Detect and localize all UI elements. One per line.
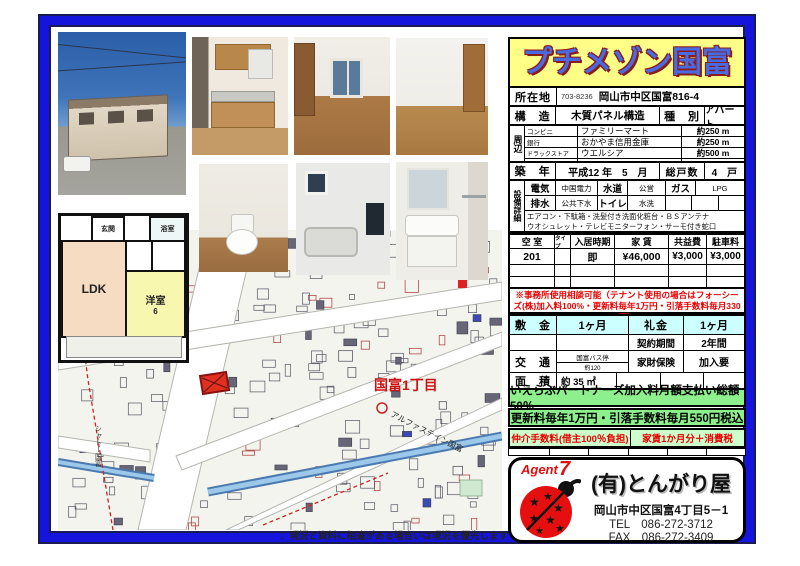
vacancy-header: 家 賃	[614, 235, 668, 248]
svg-text:★: ★	[555, 523, 565, 535]
vacancy-header: 空 室	[510, 235, 554, 248]
surrounding-row: ドラックストア ウエルシア 約500 m	[525, 148, 744, 159]
vacancy-table: 空 室 タイプ 入居時期 家 賃 共益費 駐車料 201 即 ¥46,000 ¥…	[508, 233, 746, 289]
deposit-label: 敷 金	[510, 316, 556, 334]
surroundings-block: 周辺 コンビニ ファミリーマート 約250 m 銀行 おかやま信用金庫 約250…	[508, 126, 746, 163]
built-year-row: 築 年 平成12 年 5 月 総戸数 4 戸	[508, 163, 746, 181]
vacancy-data-row: 201 即 ¥46,000 ¥3,000 ¥3,000	[510, 248, 744, 264]
ladybug-logo-icon: ★ ★ ★ ★ ★ ★ ★	[515, 474, 581, 542]
insurance-value: 加入要	[683, 351, 744, 372]
surrounding-category: ドラックストア	[525, 148, 577, 158]
rent-amount: ¥46,000	[614, 249, 668, 264]
built-value: 平成12 年 5 月	[555, 163, 659, 179]
surroundings-label: 周辺	[510, 126, 524, 161]
equipment-note-line2: ウオシュレット・テレビモニターフォン・サーモ付き蛇口	[527, 222, 742, 232]
built-label: 築 年	[510, 163, 555, 179]
key-money-value: 1ヶ月	[683, 316, 744, 334]
deposit-value: 1ヶ月	[556, 316, 628, 334]
surrounding-distance: 約250 m	[681, 137, 744, 147]
toilet-label: トイレ	[597, 196, 627, 210]
drain-label: 排水	[525, 196, 555, 210]
utilities-row-1: 電気 中国電力 水道 公営 ガス LPG	[525, 181, 744, 196]
map-building2-label: シャトー国富	[95, 425, 103, 468]
map-district-label: 国富1丁目	[374, 377, 438, 393]
partner-fee-note: いえらぶパートナーズ加入料月額支払い総額50％	[508, 388, 746, 407]
exterior-photo	[58, 32, 186, 195]
bus-stop-name: 国富バス停	[557, 352, 628, 363]
agency-box: Agent 7 ★ ★ ★ ★ ★ ★ ★ (有)とんがり屋 岡山市中区国富4丁…	[508, 457, 746, 543]
gas-label: ガス	[665, 181, 695, 195]
svg-text:★: ★	[543, 491, 553, 503]
vacancy-empty-row	[510, 276, 744, 287]
map-red-minor-marker	[458, 280, 467, 288]
vacancy-header: 駐車料	[706, 235, 744, 248]
type-label: 種 別	[659, 107, 703, 124]
drain-value: 公共下水	[555, 196, 597, 210]
floor-plan: 玄関 浴室 LDK 洋室6	[58, 213, 189, 363]
deposit-row: 敷 金 1ヶ月 礼金 1ヶ月	[510, 316, 744, 334]
transport-label: 交 通	[510, 351, 556, 372]
units-value: 4 戸	[704, 163, 744, 179]
surrounding-distance: 約500 m	[681, 148, 744, 158]
equipment-note-line1: エアコン・下駄箱・洗髪付き洗面化粧台・ＢＳアンテナ	[527, 212, 742, 222]
living-room-photo	[294, 37, 390, 155]
contract-label: 契約期間	[628, 335, 683, 350]
toilet-value: 水洗	[627, 196, 665, 210]
location-row: 所在地 703-8236 岡山市中区国富816-4	[508, 88, 746, 107]
movein-time: 即	[570, 249, 614, 264]
surrounding-distance: 約250 m	[681, 126, 744, 136]
transport-row: 交 通 国富バス停 約120 家財保険 加入要	[510, 350, 744, 372]
surrounding-row-empty	[525, 159, 744, 161]
toilet-photo	[199, 164, 288, 272]
location-value: 703-8236 岡山市中区国富816-4	[556, 88, 744, 105]
transport-value: 国富バス停 約120	[556, 351, 628, 372]
kitchen-photo	[192, 37, 288, 155]
structure-label: 構 造	[510, 107, 555, 124]
disclaimer-note: ：現況と資料に相違がある場合いは現況を優先します	[196, 528, 508, 542]
office-use-note: ※事務所使用相談可能（テナント使用の場合はフォーシーズ(株)加入料100%・更新…	[508, 287, 746, 314]
floorplan-balcony	[66, 336, 182, 358]
agency-name: (有)とんがり屋	[579, 468, 743, 498]
vacancy-header: タイプ	[554, 235, 570, 248]
surrounding-name: ファミリーマート	[577, 126, 681, 136]
terms-table: 敷 金 1ヶ月 礼金 1ヶ月 契約期間 2年間 交 通 国富バス停 約120 家…	[508, 314, 746, 391]
vacancy-header: 共益費	[668, 235, 706, 248]
electric-label: 電気	[525, 181, 555, 195]
surrounding-row: コンビニ ファミリーマート 約250 m	[525, 126, 744, 137]
floorplan-entrance: 玄関	[91, 216, 125, 242]
water-label: 水道	[597, 181, 627, 195]
contract-value: 2年間	[683, 335, 744, 350]
equipment-label: 設備詳細	[510, 181, 524, 231]
insurance-label: 家財保険	[628, 351, 683, 372]
contract-row: 契約期間 2年間	[510, 334, 744, 350]
svg-text:★: ★	[529, 495, 540, 509]
renewal-fee-note: 更新料毎年1万円・引落手数料毎月550円税込	[508, 408, 746, 427]
units-label: 総戸数	[659, 163, 703, 179]
location-label: 所在地	[510, 88, 556, 105]
structure-row: 構 造 木質パネル構造 種 別 アパート	[508, 107, 746, 126]
floorplan-ldk: LDK	[61, 240, 127, 338]
floorplan-toilet-box	[125, 240, 153, 272]
vacancy-header: 入居時期	[570, 235, 614, 248]
common-fee: ¥3,000	[668, 249, 706, 264]
map-property-marker	[200, 372, 229, 394]
bus-stop-distance: 約120	[557, 363, 628, 372]
surrounding-name: おかやま信用金庫	[577, 137, 681, 147]
key-money-label: 礼金	[628, 316, 683, 334]
agency-fax: FAX 086-272-3409	[579, 529, 743, 545]
surrounding-category: 銀行	[525, 137, 577, 147]
spacer-cells-row	[508, 448, 746, 456]
flyer-page: 国富1丁目 アルファステイン国富 シャトー国富 玄関 浴室 LDK 洋室6	[0, 0, 800, 566]
svg-text:★: ★	[529, 513, 539, 525]
broker-fee-value: 家賃1か月分＋消費税	[630, 430, 744, 446]
electric-value: 中国電力	[555, 181, 597, 195]
parking-fee: ¥3,000	[706, 249, 744, 264]
room-type	[554, 249, 570, 264]
type-value: アパート	[704, 107, 744, 124]
vacancy-empty-row	[510, 264, 744, 276]
bathroom-photo	[296, 163, 390, 275]
water-value: 公営	[627, 181, 665, 195]
surrounding-name: ウエルシア	[577, 148, 681, 158]
property-title: プチメゾン国富	[508, 37, 746, 88]
washstand-photo	[396, 162, 488, 280]
broker-fee-row: 仲介手数料(借主100％負担) 家賃1か月分＋消費税	[508, 428, 746, 448]
room-number: 201	[510, 249, 554, 264]
structure-value: 木質パネル構造	[555, 107, 659, 124]
equipment-notes: エアコン・下駄箱・洗髪付き洗面化粧台・ＢＳアンテナ ウオシュレット・テレビモニタ…	[525, 211, 744, 233]
floorplan-bath: 浴室	[149, 216, 186, 242]
postal-code: 703-8236	[561, 92, 593, 101]
map-park-patch	[460, 480, 482, 496]
floorplan-western-room: 洋室6	[125, 270, 186, 338]
utilities-row-2: 排水 公共下水 トイレ 水洗	[525, 196, 744, 211]
vacancy-header-row: 空 室 タイプ 入居時期 家 賃 共益費 駐車料	[510, 235, 744, 248]
address-text: 岡山市中区国富816-4	[599, 89, 699, 104]
broker-fee-label: 仲介手数料(借主100％負担)	[510, 430, 630, 446]
western-room-photo	[396, 38, 488, 155]
surrounding-category: コンビニ	[525, 126, 577, 136]
gas-value: LPG	[695, 181, 744, 195]
floorplan-washer-box	[151, 240, 186, 272]
svg-text:★: ★	[535, 526, 544, 537]
equipment-block: 設備詳細 電気 中国電力 水道 公営 ガス LPG 排水 公共下水 トイレ 水洗…	[508, 181, 746, 233]
surrounding-row: 銀行 おかやま信用金庫 約250 m	[525, 137, 744, 148]
